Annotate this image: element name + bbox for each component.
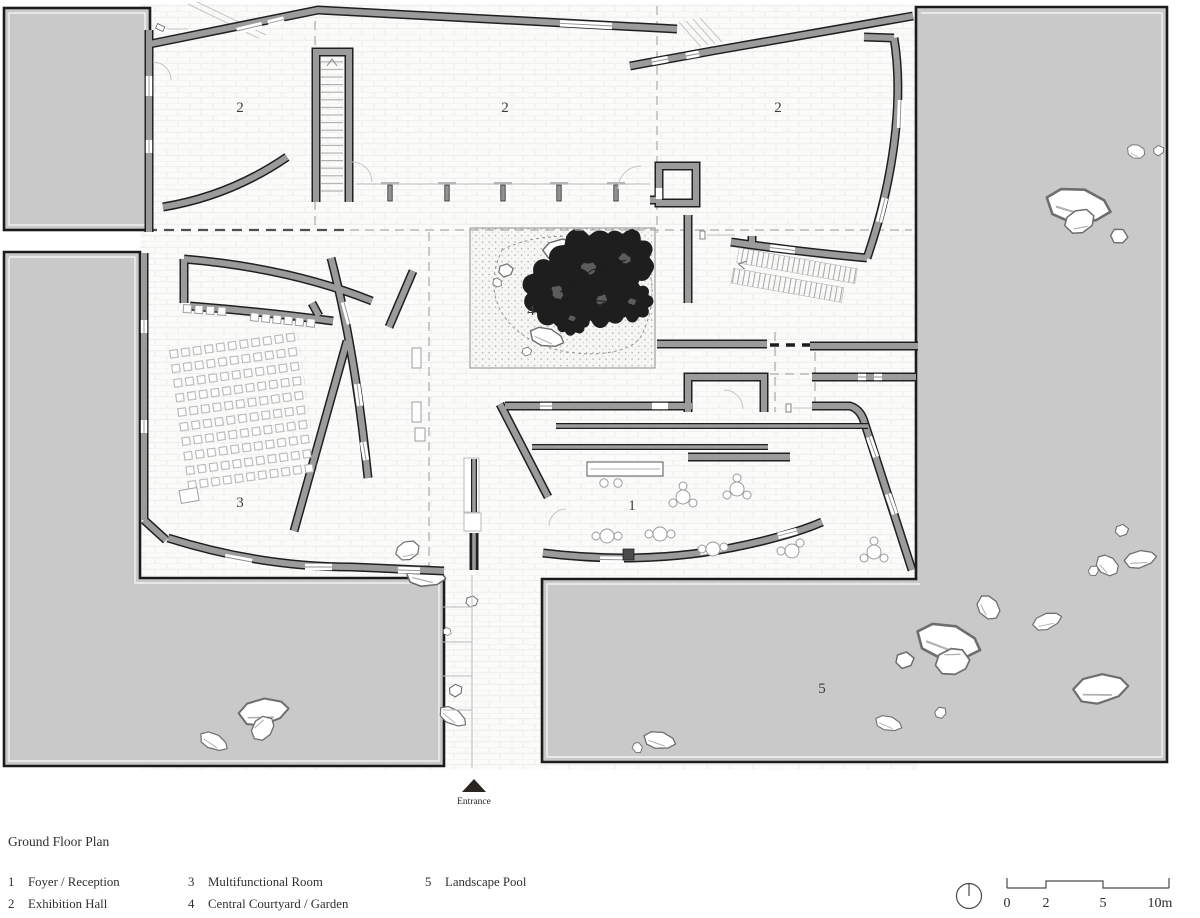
audience-chair-grid bbox=[166, 328, 317, 493]
pool-top-left bbox=[4, 8, 150, 230]
legend-item-exhibition: 2 Exhibition Hall bbox=[8, 897, 107, 912]
entrance-triangle-icon bbox=[462, 779, 486, 792]
room-label-foyer: 1 bbox=[628, 498, 636, 514]
scale-tick-5: 5 bbox=[1100, 896, 1107, 911]
legend-label: Exhibition Hall bbox=[28, 897, 107, 912]
entrance-marker: Entrance bbox=[457, 779, 491, 807]
room-label-exhibition-left: 2 bbox=[236, 100, 244, 116]
legend-label: Multifunctional Room bbox=[208, 875, 323, 890]
room-label-pool: 5 bbox=[818, 681, 826, 697]
scale-tick-2: 2 bbox=[1043, 896, 1050, 911]
entrance-label: Entrance bbox=[457, 797, 491, 807]
room-label-exhibition-mid: 2 bbox=[501, 100, 509, 116]
door-tag bbox=[700, 231, 705, 239]
legend-item-pool: 5 Landscape Pool bbox=[425, 875, 526, 890]
legend-num: 2 bbox=[8, 897, 16, 912]
legend-num: 4 bbox=[188, 897, 196, 912]
stair-left-hall bbox=[321, 58, 343, 198]
south-wall-pier bbox=[623, 549, 634, 560]
legend-label: Foyer / Reception bbox=[28, 875, 120, 890]
page-title: Ground Floor Plan bbox=[8, 834, 109, 850]
legend-num: 5 bbox=[425, 875, 433, 890]
north-arrow bbox=[957, 884, 982, 909]
legend-item-courtyard: 4 Central Courtyard / Garden bbox=[188, 897, 348, 912]
room-label-courtyard: 4 bbox=[527, 303, 535, 319]
scale-bar: 0 2 5 10m bbox=[1004, 878, 1173, 911]
scale-tick-10m: 10m bbox=[1148, 896, 1173, 911]
room-label-multifunctional: 3 bbox=[236, 495, 244, 511]
legend-label: Landscape Pool bbox=[445, 875, 526, 890]
legend-item-foyer: 1 Foyer / Reception bbox=[8, 875, 120, 890]
legend-num: 1 bbox=[8, 875, 16, 890]
central-courtyard-garden bbox=[470, 228, 655, 368]
legend-label: Central Courtyard / Garden bbox=[208, 897, 348, 912]
ground-floor-plan-sheet: 2 2 2 3 4 1 5 Entrance 0 2 5 10m Ground … bbox=[0, 0, 1200, 918]
podium bbox=[179, 488, 199, 504]
room-label-exhibition-right: 2 bbox=[774, 100, 782, 116]
legend-num: 3 bbox=[188, 875, 196, 890]
floor-plan-svg: 2 2 2 3 4 1 5 Entrance 0 2 5 10m bbox=[0, 0, 1200, 918]
door-tag bbox=[786, 404, 791, 412]
scale-tick-0: 0 bbox=[1004, 896, 1011, 911]
legend-item-multifunctional: 3 Multifunctional Room bbox=[188, 875, 323, 890]
